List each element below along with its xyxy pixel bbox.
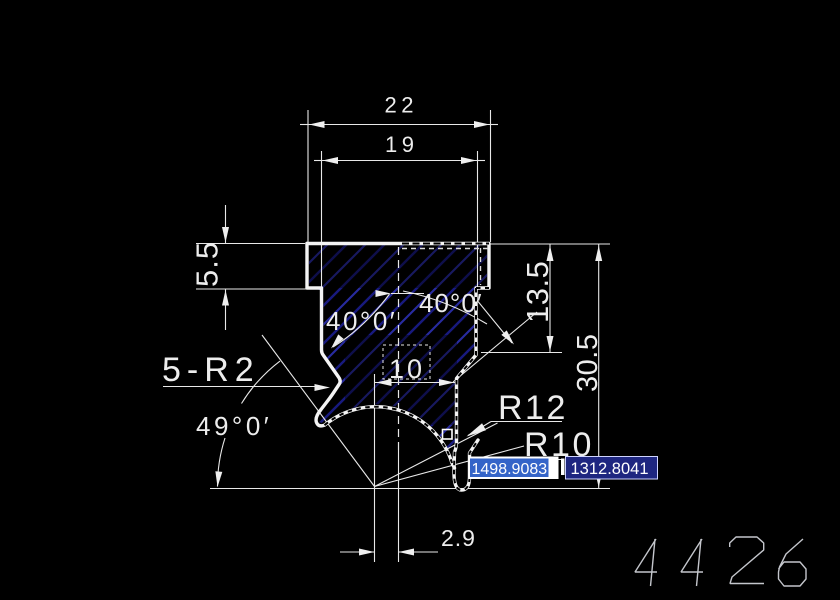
svg-text:30.5: 30.5 — [572, 334, 604, 392]
svg-text:1312.8041: 1312.8041 — [571, 460, 649, 478]
svg-text:13.5: 13.5 — [520, 261, 555, 323]
svg-text:40°0′: 40°0′ — [326, 306, 397, 336]
svg-text:40°0′: 40°0′ — [419, 288, 483, 318]
svg-text:2.9: 2.9 — [441, 525, 476, 551]
svg-text:5-R2: 5-R2 — [162, 351, 260, 389]
svg-text:R12: R12 — [498, 389, 568, 427]
svg-text:19: 19 — [385, 132, 418, 157]
svg-text:1498.9083: 1498.9083 — [472, 461, 548, 478]
svg-text:5.5: 5.5 — [190, 241, 225, 287]
svg-text:10: 10 — [389, 354, 425, 384]
svg-text:22: 22 — [385, 93, 418, 118]
svg-text:49°0′: 49°0′ — [196, 411, 272, 441]
